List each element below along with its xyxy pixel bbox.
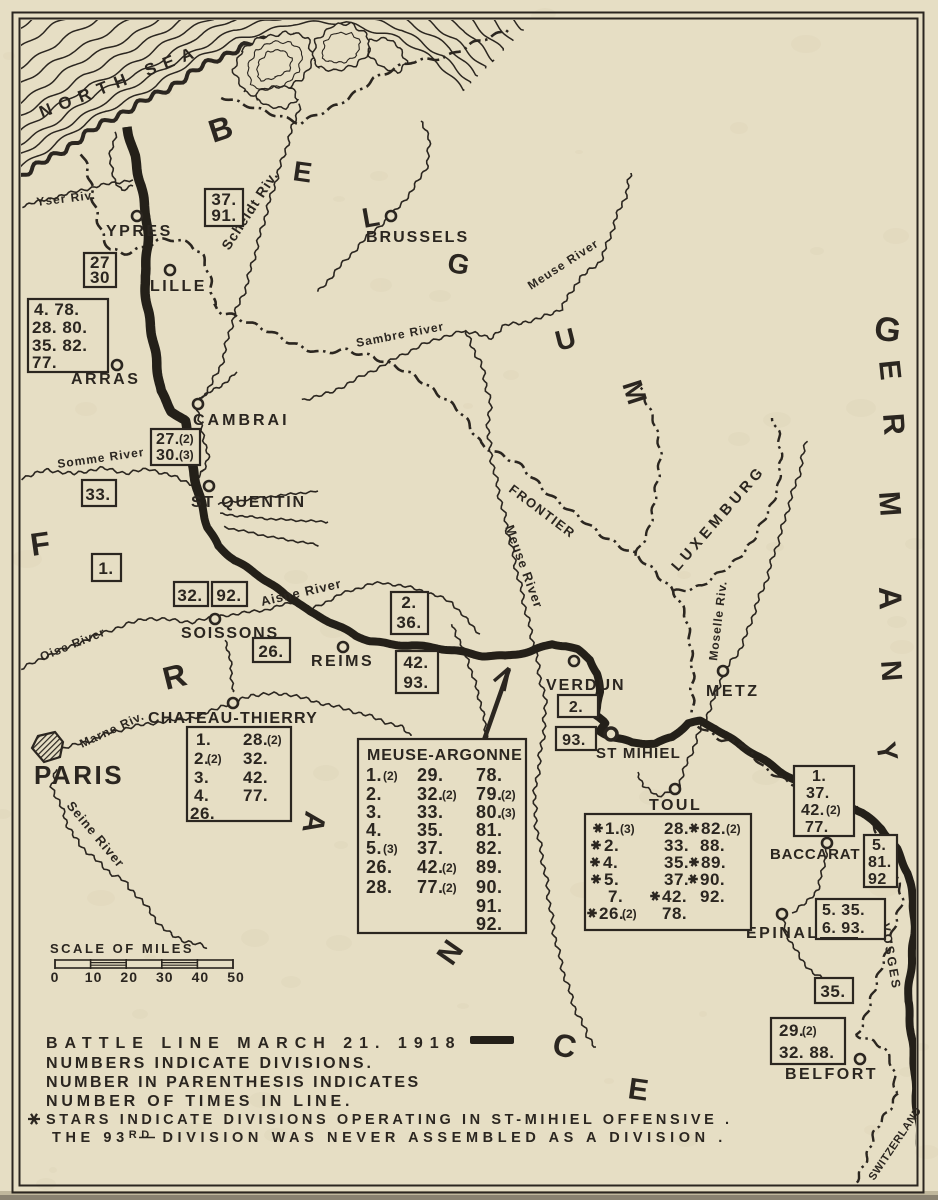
svg-text:4.: 4. bbox=[194, 786, 209, 805]
svg-text:3.: 3. bbox=[366, 802, 382, 822]
svg-text:CHATEAU-THIERRY: CHATEAU-THIERRY bbox=[148, 710, 318, 727]
svg-text:1.: 1. bbox=[98, 559, 113, 578]
svg-text:32.: 32. bbox=[243, 749, 268, 768]
svg-text:A: A bbox=[872, 586, 909, 610]
svg-text:78.: 78. bbox=[662, 904, 687, 923]
svg-text:N: N bbox=[874, 659, 907, 682]
svg-text:42.: 42. bbox=[243, 768, 268, 787]
svg-text:10: 10 bbox=[85, 969, 103, 985]
svg-text:2.: 2. bbox=[366, 784, 382, 804]
svg-text:29.: 29. bbox=[417, 765, 444, 785]
svg-text:35.: 35. bbox=[417, 820, 444, 840]
svg-text:(2): (2) bbox=[501, 788, 516, 802]
svg-text:(2): (2) bbox=[622, 907, 637, 921]
svg-text:LILLE: LILLE bbox=[150, 278, 207, 295]
svg-text:92.: 92. bbox=[700, 887, 725, 906]
svg-text:(3): (3) bbox=[383, 842, 398, 856]
svg-text:93.: 93. bbox=[562, 732, 586, 749]
svg-text:SCALE OF MILES: SCALE OF MILES bbox=[50, 941, 194, 956]
svg-text:NUMBER IN PARENTHESIS INDICATE: NUMBER IN PARENTHESIS INDICATES bbox=[46, 1074, 421, 1091]
svg-text:3.: 3. bbox=[194, 768, 209, 787]
svg-text:ST MIHIEL: ST MIHIEL bbox=[596, 745, 681, 762]
svg-text:METZ: METZ bbox=[706, 683, 760, 700]
svg-text:(2): (2) bbox=[726, 822, 741, 836]
svg-text:32. 88.: 32. 88. bbox=[779, 1043, 835, 1062]
svg-text:(2): (2) bbox=[442, 788, 457, 802]
svg-text:YPRES: YPRES bbox=[106, 223, 173, 240]
svg-text:2.: 2. bbox=[569, 699, 583, 716]
svg-text:1.: 1. bbox=[366, 765, 382, 785]
svg-text:TOUL: TOUL bbox=[649, 797, 702, 814]
svg-text:81.: 81. bbox=[868, 854, 892, 871]
svg-text:79.: 79. bbox=[476, 784, 503, 804]
svg-text:29.: 29. bbox=[779, 1021, 804, 1040]
svg-text:(2): (2) bbox=[207, 752, 222, 766]
svg-text:92: 92 bbox=[868, 871, 887, 888]
svg-text:STARS INDICATE DIVISIONS OPERA: STARS INDICATE DIVISIONS OPERATING IN ST… bbox=[46, 1112, 733, 1128]
svg-text:92.: 92. bbox=[476, 914, 503, 934]
svg-text:42.: 42. bbox=[417, 857, 444, 877]
svg-text:R: R bbox=[876, 412, 910, 436]
svg-text:5.: 5. bbox=[872, 837, 886, 854]
svg-text:92.: 92. bbox=[216, 586, 241, 605]
svg-text:77.: 77. bbox=[805, 819, 829, 836]
svg-text:28.: 28. bbox=[366, 877, 393, 897]
svg-text:(2): (2) bbox=[442, 881, 457, 895]
svg-text:30: 30 bbox=[156, 969, 174, 985]
svg-text:81.: 81. bbox=[476, 820, 503, 840]
svg-text:NUMBER OF TIMES IN LINE.: NUMBER OF TIMES IN LINE. bbox=[46, 1093, 353, 1110]
svg-text:50: 50 bbox=[227, 969, 245, 985]
svg-text:2.: 2. bbox=[401, 593, 416, 612]
svg-text:(2): (2) bbox=[442, 861, 457, 875]
svg-text:(2): (2) bbox=[179, 432, 194, 446]
svg-text:(3): (3) bbox=[501, 806, 516, 820]
svg-text:26.: 26. bbox=[366, 857, 393, 877]
svg-text:37.: 37. bbox=[417, 838, 444, 858]
svg-text:90.: 90. bbox=[476, 877, 503, 897]
svg-text:G: G bbox=[872, 309, 903, 350]
svg-text:32.: 32. bbox=[177, 586, 202, 605]
svg-text:26.: 26. bbox=[190, 804, 215, 823]
svg-text:(3): (3) bbox=[179, 448, 194, 462]
svg-text:(2): (2) bbox=[267, 733, 282, 747]
svg-text:BACCARAT: BACCARAT bbox=[770, 846, 860, 863]
svg-text:78.: 78. bbox=[476, 765, 503, 785]
svg-text:35.: 35. bbox=[820, 982, 845, 1001]
svg-text:77.: 77. bbox=[32, 353, 57, 372]
svg-text:NUMBERS INDICATE DIVISIONS.: NUMBERS INDICATE DIVISIONS. bbox=[46, 1055, 374, 1072]
svg-text:1.: 1. bbox=[196, 730, 211, 749]
svg-text:BELFORT: BELFORT bbox=[785, 1066, 878, 1083]
svg-text:30: 30 bbox=[90, 268, 110, 287]
svg-text:91.: 91. bbox=[476, 896, 503, 916]
svg-text:CAMBRAI: CAMBRAI bbox=[193, 412, 290, 429]
svg-text:89.: 89. bbox=[476, 857, 503, 877]
svg-text:M: M bbox=[872, 490, 907, 517]
svg-text:6. 93.: 6. 93. bbox=[822, 920, 865, 937]
svg-text:(2): (2) bbox=[802, 1024, 817, 1038]
svg-text:ST QUENTIN: ST QUENTIN bbox=[191, 494, 306, 511]
svg-text:E: E bbox=[872, 358, 907, 381]
svg-text:26.: 26. bbox=[599, 904, 624, 923]
svg-text:0: 0 bbox=[51, 969, 60, 985]
svg-text:(2): (2) bbox=[826, 803, 841, 817]
svg-text:82.: 82. bbox=[476, 838, 503, 858]
svg-text:91.: 91. bbox=[211, 206, 236, 225]
svg-text:32.: 32. bbox=[417, 784, 444, 804]
svg-text:BATTLE LINE MARCH 21. 1918: BATTLE LINE MARCH 21. 1918 bbox=[46, 1035, 462, 1052]
svg-text:28. 80.: 28. 80. bbox=[32, 318, 88, 337]
svg-text:(3): (3) bbox=[620, 822, 635, 836]
svg-text:80.: 80. bbox=[476, 802, 503, 822]
svg-text:4.: 4. bbox=[366, 820, 382, 840]
svg-text:37.: 37. bbox=[806, 785, 830, 802]
svg-text:EPINAL: EPINAL bbox=[746, 925, 820, 942]
svg-text:26.: 26. bbox=[258, 642, 283, 661]
svg-text:PARIS: PARIS bbox=[34, 760, 124, 790]
svg-text:27.: 27. bbox=[156, 431, 180, 448]
svg-text:REIMS: REIMS bbox=[311, 653, 374, 670]
svg-text:28.: 28. bbox=[243, 730, 268, 749]
svg-text:1.: 1. bbox=[812, 768, 826, 785]
svg-text:5.: 5. bbox=[366, 838, 382, 858]
svg-text:MEUSE-ARGONNE: MEUSE-ARGONNE bbox=[367, 747, 523, 764]
svg-text:5. 35.: 5. 35. bbox=[822, 902, 865, 919]
svg-text:30.: 30. bbox=[156, 447, 180, 464]
svg-text:40: 40 bbox=[192, 969, 210, 985]
svg-text:33.: 33. bbox=[417, 802, 444, 822]
svg-text:77.: 77. bbox=[417, 877, 444, 897]
svg-text:42.: 42. bbox=[403, 653, 428, 672]
svg-text:VERDUN: VERDUN bbox=[546, 677, 626, 694]
svg-text:93.: 93. bbox=[403, 673, 428, 692]
svg-text:BRUSSELS: BRUSSELS bbox=[366, 229, 469, 246]
svg-text:77.: 77. bbox=[243, 786, 268, 805]
svg-text:(2): (2) bbox=[383, 769, 398, 783]
svg-text:ARRAS: ARRAS bbox=[71, 371, 140, 388]
svg-text:36.: 36. bbox=[396, 613, 421, 632]
svg-text:4. 78.: 4. 78. bbox=[34, 300, 80, 319]
svg-text:33.: 33. bbox=[85, 485, 110, 504]
svg-text:42.: 42. bbox=[801, 802, 825, 819]
svg-text:20: 20 bbox=[120, 969, 138, 985]
